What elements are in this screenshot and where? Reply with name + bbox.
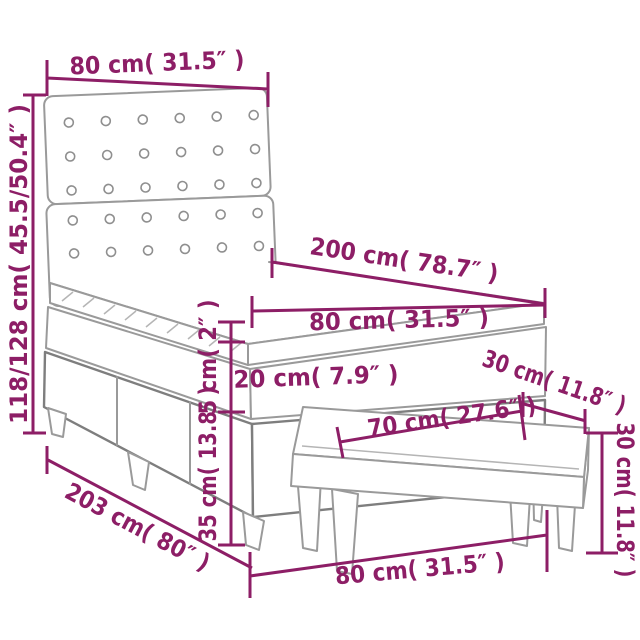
diagram-canvas: 80 cm( 31.5″ ) 118/128 cm( 45.5/50.4″ ) … xyxy=(0,0,640,640)
dimension-diagram: 80 cm( 31.5″ ) 118/128 cm( 45.5/50.4″ ) … xyxy=(0,0,640,640)
dim-headboard-height-label: 118/128 cm( 45.5/50.4″ ) xyxy=(5,104,33,424)
dim-total-length-label: 203 cm( 80″ ) xyxy=(60,477,214,577)
dim-bench-width-label: 80 cm( 31.5″ ) xyxy=(334,548,506,591)
bed-leg xyxy=(48,408,66,437)
dim-base-height-label: 35 cm( 13.8″ ) xyxy=(194,387,222,542)
bed-leg xyxy=(243,512,264,550)
dim-mattress-thickness-label: 20 cm( 7.9″ ) xyxy=(233,360,399,394)
headboard-upper-panel xyxy=(44,88,271,205)
dim-mattress-width-label: 80 cm( 31.5″ ) xyxy=(309,304,490,337)
dim-bench-height-label: 30 cm( 11.8″ ) xyxy=(611,423,639,578)
dim-headboard-width-label: 80 cm( 31.5″ ) xyxy=(69,46,245,81)
